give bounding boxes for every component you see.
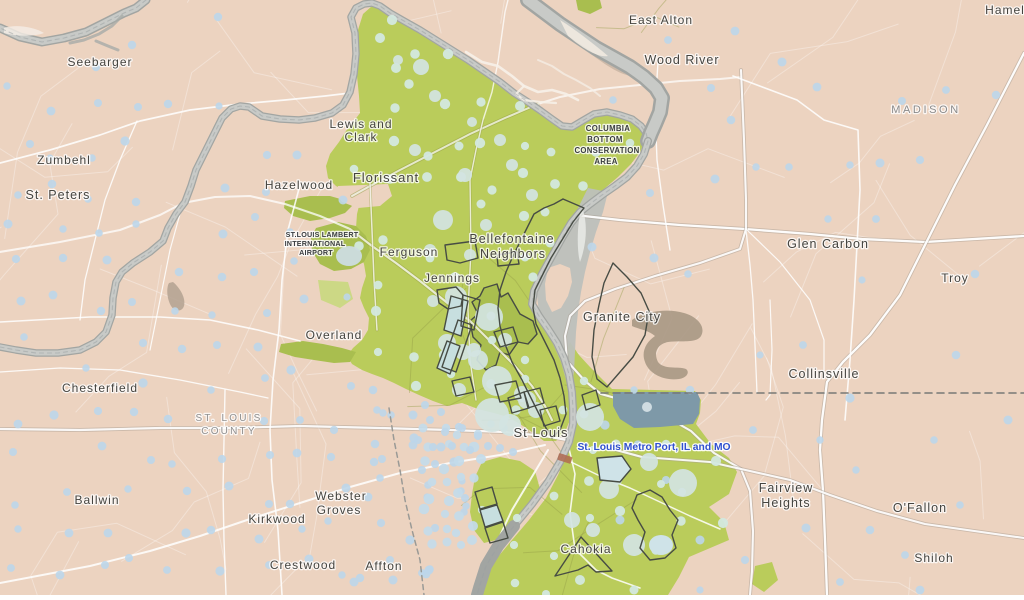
svg-text:Heights: Heights bbox=[761, 496, 810, 510]
svg-text:CONSERVATION: CONSERVATION bbox=[574, 146, 639, 155]
svg-text:Hazelwood: Hazelwood bbox=[265, 178, 333, 192]
svg-text:Glen Carbon: Glen Carbon bbox=[787, 237, 869, 251]
svg-text:Jennings: Jennings bbox=[424, 271, 480, 285]
svg-text:Ferguson: Ferguson bbox=[380, 245, 439, 259]
svg-text:St. Peters: St. Peters bbox=[26, 188, 91, 202]
svg-text:Seebarger: Seebarger bbox=[67, 55, 132, 69]
svg-text:Lewis and: Lewis and bbox=[329, 117, 392, 131]
svg-text:Zumbehl: Zumbehl bbox=[37, 153, 91, 167]
svg-text:AIRPORT: AIRPORT bbox=[299, 248, 333, 257]
svg-text:AREA: AREA bbox=[594, 157, 617, 166]
svg-text:Collinsville: Collinsville bbox=[788, 367, 859, 381]
svg-text:O'Fallon: O'Fallon bbox=[893, 501, 947, 515]
svg-text:ST. LOUIS: ST. LOUIS bbox=[195, 413, 262, 424]
svg-text:COLUMBIA: COLUMBIA bbox=[586, 124, 630, 133]
svg-text:Florissant: Florissant bbox=[353, 170, 419, 185]
svg-text:COUNTY: COUNTY bbox=[201, 426, 256, 437]
svg-text:Neighbors: Neighbors bbox=[480, 247, 546, 261]
svg-text:Cahokia: Cahokia bbox=[560, 542, 611, 556]
svg-text:Shiloh: Shiloh bbox=[914, 551, 953, 565]
svg-text:St Louis: St Louis bbox=[514, 425, 569, 440]
svg-text:ST.LOUIS LAMBERT: ST.LOUIS LAMBERT bbox=[286, 230, 359, 239]
svg-text:Ballwin: Ballwin bbox=[74, 493, 119, 507]
svg-text:Chesterfield: Chesterfield bbox=[62, 381, 138, 395]
svg-text:Webster: Webster bbox=[315, 489, 366, 503]
svg-text:Groves: Groves bbox=[317, 503, 362, 517]
svg-text:Troy: Troy bbox=[941, 271, 969, 285]
svg-text:Clark: Clark bbox=[344, 130, 377, 144]
svg-text:Crestwood: Crestwood bbox=[270, 558, 336, 572]
svg-text:Hamel: Hamel bbox=[985, 3, 1024, 17]
svg-text:Bellefontaine: Bellefontaine bbox=[469, 232, 554, 246]
svg-text:BOTTOM: BOTTOM bbox=[587, 135, 622, 144]
svg-text:Overland: Overland bbox=[306, 328, 363, 342]
svg-text:East Alton: East Alton bbox=[629, 13, 693, 27]
svg-text:Kirkwood: Kirkwood bbox=[248, 512, 305, 526]
svg-text:Affton: Affton bbox=[365, 559, 402, 573]
svg-text:Fairview: Fairview bbox=[759, 481, 814, 495]
svg-text:Wood River: Wood River bbox=[644, 53, 719, 67]
svg-text:MADISON: MADISON bbox=[891, 104, 961, 116]
svg-text:St. Louis Metro Port, IL and M: St. Louis Metro Port, IL and MO bbox=[577, 442, 730, 453]
svg-text:INTERNATIONAL: INTERNATIONAL bbox=[285, 239, 346, 248]
svg-text:Granite City: Granite City bbox=[583, 310, 661, 324]
